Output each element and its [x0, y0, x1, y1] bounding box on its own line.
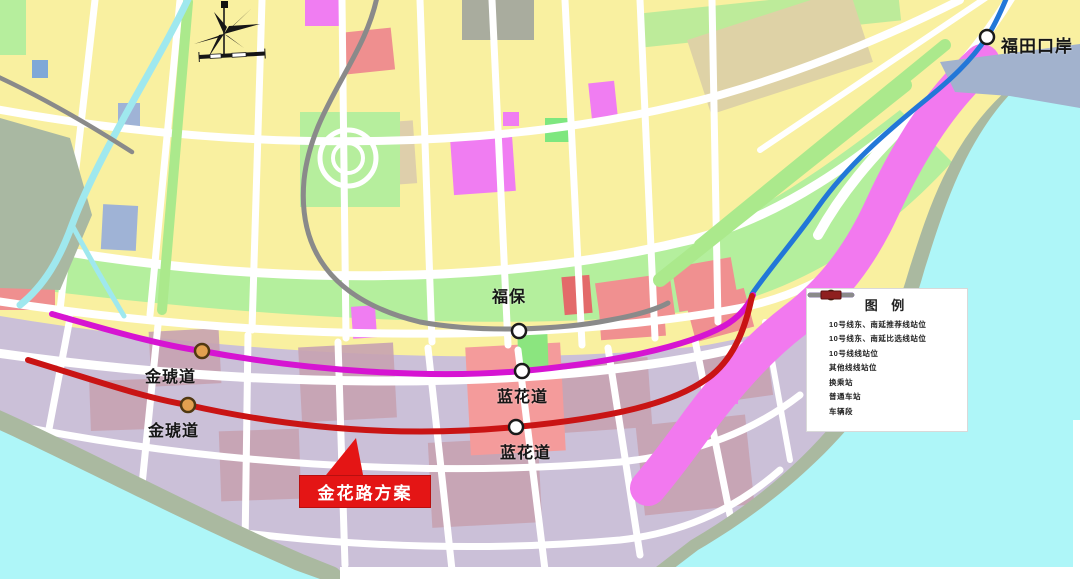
station-futian-checkpoint: [980, 30, 994, 44]
legend-row-alternative: 10号线东、南延比选线站位: [807, 332, 967, 347]
margin-bottom: [340, 567, 1080, 579]
station-lanhuadao-recommended: [509, 420, 523, 434]
plan-callout: 金花路方案: [299, 475, 431, 508]
legend-row-recommended: 10号线东、南延推荐线站位: [807, 317, 967, 332]
station-jinhudao-alternative: [195, 344, 209, 358]
legend-label: 10号线东、南延比选线站位: [829, 333, 926, 344]
margin-right: [1073, 420, 1080, 579]
legend-row-other-lines: 其他线线站位: [807, 361, 967, 376]
legend: 图 例 10号线东、南延推荐线站位 10号线东、南延比选线站位 10号线线站位: [806, 288, 968, 432]
station-label-jinhudao-upper: 金琥道: [145, 363, 196, 387]
station-label-lanhuadao-upper: 蓝花道: [497, 383, 548, 407]
station-label-lanhuadao-lower: 蓝花道: [500, 439, 551, 463]
legend-label: 换乘站: [829, 377, 853, 388]
station-label-fubao: 福保: [492, 283, 526, 307]
legend-label: 车辆段: [829, 406, 853, 417]
legend-label: 10号线线站位: [829, 348, 878, 359]
legend-label: 其他线线站位: [829, 362, 877, 373]
legend-row-normal-station: 普通车站: [807, 390, 967, 405]
station-lanhuadao-alternative: [515, 364, 529, 378]
station-fubao: [512, 324, 526, 338]
legend-label: 10号线东、南延推荐线站位: [829, 319, 926, 330]
legend-row-line10: 10号线线站位: [807, 346, 967, 361]
station-label-jinhudao-lower: 金琥道: [148, 417, 199, 441]
legend-label: 普通车站: [829, 391, 861, 402]
legend-row-interchange: 换乘站: [807, 375, 967, 390]
legend-depot-icon: [807, 289, 855, 301]
legend-row-depot: 车辆段: [807, 404, 967, 419]
station-label-futian-checkpoint: 福田口岸: [1001, 32, 1073, 57]
planning-map: 福田口岸 福保 金琥道 金琥道 蓝花道 蓝花道 金花路方案 图 例 10号线东、…: [0, 0, 1080, 579]
station-jinhudao-recommended: [181, 398, 195, 412]
